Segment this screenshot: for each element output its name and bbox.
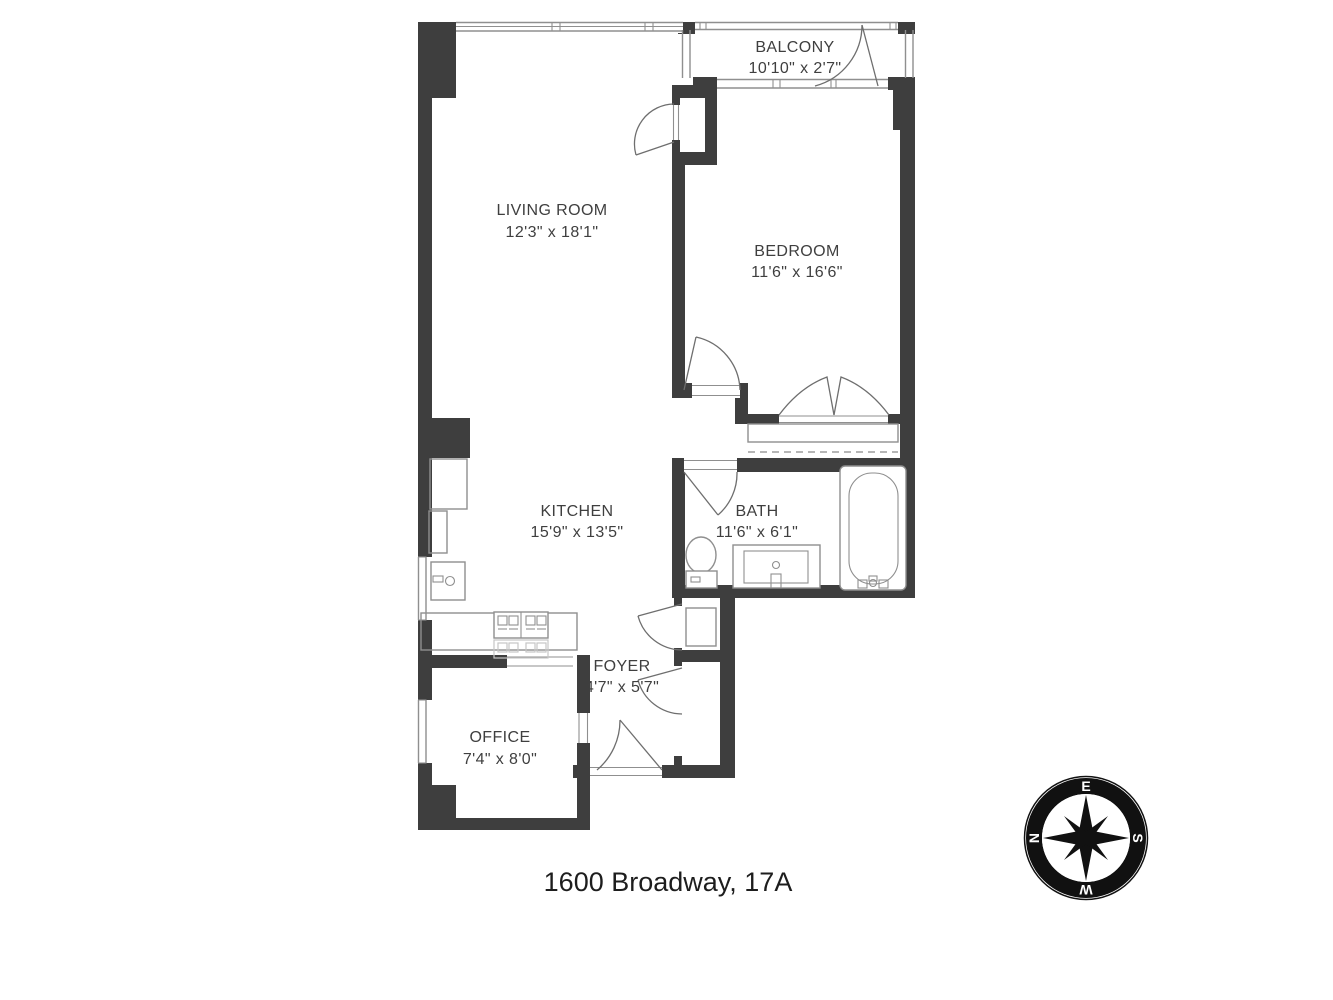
bedroom-door: [684, 337, 740, 390]
compass-letter-right: S: [1130, 833, 1146, 842]
foyer-dims: 4'7" x 5'7": [585, 679, 659, 696]
living-closet-opening: [672, 105, 680, 140]
balcony-dims: 10'10" x 2'7": [749, 60, 842, 77]
foyer-label: FOYER: [593, 658, 650, 675]
bedroom-closet-shelf: [748, 424, 898, 452]
office-dims: 7'4" x 8'0": [463, 751, 537, 768]
bath-label: BATH: [735, 503, 778, 520]
entry-door: [597, 720, 662, 770]
office-label: OFFICE: [469, 729, 530, 746]
compass-letter-top: E: [1081, 778, 1090, 794]
office-top-opening: [507, 655, 573, 668]
bedroom-door-opening: [692, 383, 740, 398]
foyer-closet-shelf: [686, 608, 716, 646]
compass-letter-bottom: W: [1079, 882, 1093, 898]
bath-dims: 11'6" x 6'1": [716, 524, 798, 541]
living-closet-door: [634, 104, 674, 155]
bedroom-closet-bifold-doors: [779, 377, 889, 415]
balcony-label: BALCONY: [755, 39, 834, 56]
toilet: [686, 537, 717, 588]
bathtub: [840, 466, 906, 590]
office-window: [418, 700, 427, 763]
refrigerator: [430, 459, 467, 509]
compass-letter-left: N: [1026, 833, 1042, 843]
foyer-closet-upper-door: [638, 604, 682, 650]
kitchen-dims: 15'9" x 13'5": [531, 524, 624, 541]
living-room-dims: 12'3" x 18'1": [506, 224, 599, 241]
office-side-opening: [577, 713, 590, 743]
bath-door: [684, 472, 737, 515]
floorplan-drawing: BALCONY 10'10" x 2'7" LIVING ROOM 12'3" …: [0, 0, 1333, 1000]
kitchen-sink: [431, 562, 465, 600]
kitchen-window: [418, 557, 427, 620]
walls: [418, 22, 915, 830]
bedroom-label: BEDROOM: [754, 243, 839, 260]
bedroom-closet-track: [779, 416, 888, 423]
living-room-window-band: [456, 21, 683, 33]
living-room-label: LIVING ROOM: [496, 202, 607, 219]
compass-rose: E S W N: [1025, 777, 1148, 900]
range-stove: [494, 612, 548, 658]
vanity-sink: [733, 545, 820, 588]
plan-title: 1600 Broadway, 17A: [544, 867, 793, 897]
floorplan-page: BALCONY 10'10" x 2'7" LIVING ROOM 12'3" …: [0, 0, 1333, 1000]
kitchen-label: KITCHEN: [540, 503, 613, 520]
bedroom-dims: 11'6" x 16'6": [751, 264, 843, 281]
bath-door-opening: [684, 458, 737, 472]
